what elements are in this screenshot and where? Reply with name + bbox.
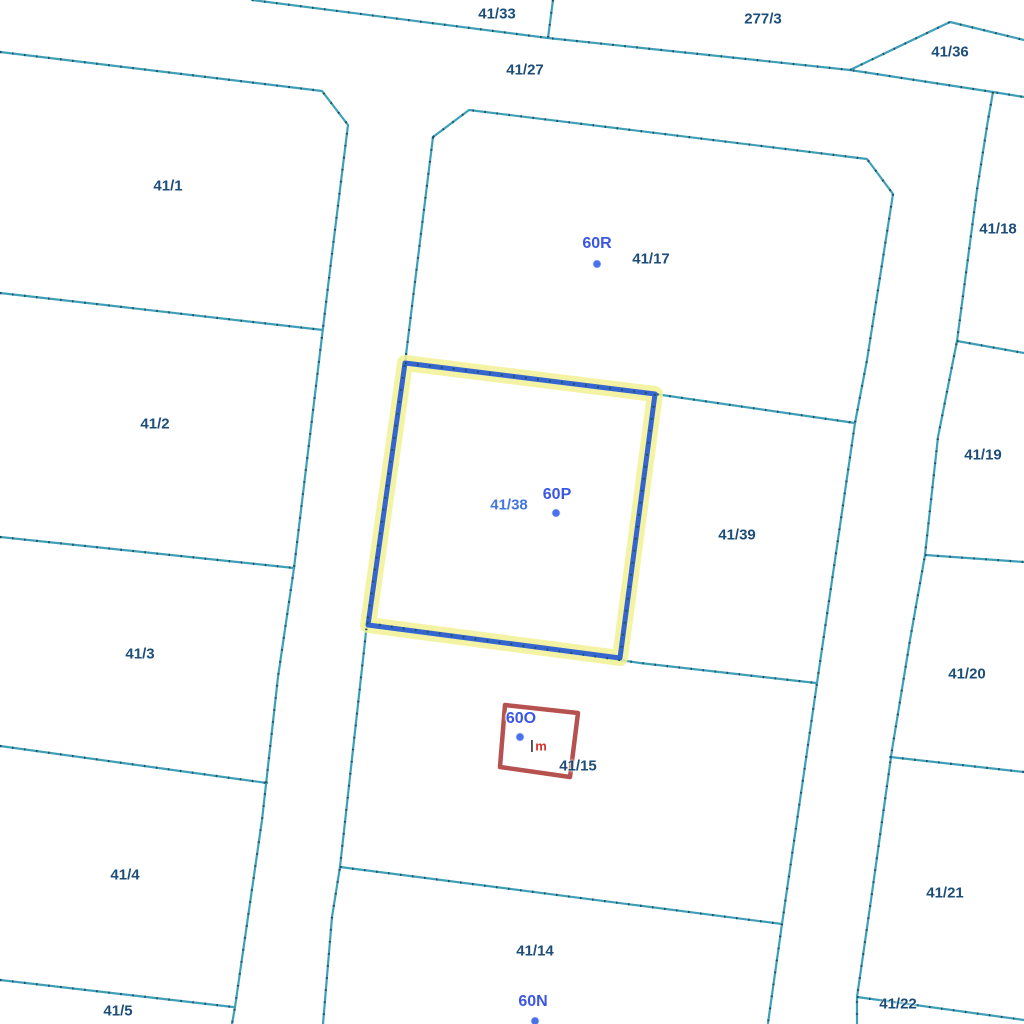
parcel-label-41-5: 41/5 [103, 1004, 132, 1019]
parcel-label-41-39: 41/39 [718, 528, 756, 543]
parcel-label-41-15: 41/15 [559, 759, 597, 774]
parcel-label-41-17: 41/17 [632, 252, 670, 267]
boundary-41-15-41-14-divider [340, 867, 782, 924]
boundary-tick-marks [0, 52, 348, 1024]
parcel-label-41-3: 41/3 [125, 647, 154, 662]
parcel-label-41-36: 41/36 [931, 45, 969, 60]
annotation-m: m [535, 740, 547, 753]
building-marker-60N [531, 1017, 540, 1024]
parcel-label-41-27: 41/27 [506, 63, 544, 78]
boundary-41-18-41-19-divider [957, 341, 1024, 353]
parcel-label-41-20: 41/20 [948, 667, 986, 682]
cadastral-map-canvas[interactable]: 41/33277/341/3641/2741/160R41/1741/1841/… [0, 0, 1024, 1024]
boundary-left-road-west [0, 52, 348, 1024]
annotation-vbar: | [530, 739, 534, 752]
boundary-tick-marks [433, 110, 893, 194]
parcel-label-41-19: 41/19 [964, 448, 1002, 463]
building-marker-60R [593, 260, 602, 269]
boundary-41-33-277-3-divider [548, 0, 553, 38]
parcel-label-41-21: 41/21 [926, 886, 964, 901]
building-label-60R: 60R [582, 236, 611, 252]
parcel-label-277-3: 277/3 [744, 12, 782, 27]
boundary-41-17-north [433, 110, 893, 194]
building-marker-60P [552, 509, 561, 518]
building-label-60P: 60P [543, 487, 571, 503]
building-marker-60O [516, 733, 525, 742]
building-label-60N: 60N [518, 994, 547, 1010]
selected-parcel-label-41-38: 41/38 [490, 498, 528, 513]
boundary-right-road-west [768, 194, 893, 1023]
parcel-label-41-14: 41/14 [516, 944, 554, 959]
parcel-label-41-33: 41/33 [478, 7, 516, 22]
parcel-label-41-1: 41/1 [153, 179, 182, 194]
parcel-label-41-2: 41/2 [140, 417, 169, 432]
parcel-label-41-18: 41/18 [979, 222, 1017, 237]
boundary-top [252, 0, 1024, 97]
building-label-60O: 60O [506, 711, 536, 727]
parcel-label-41-4: 41/4 [110, 868, 139, 883]
parcel-label-41-22: 41/22 [879, 997, 917, 1012]
boundary-41-20-41-21-divider [890, 757, 1024, 772]
boundary-41-2-41-3-divider [0, 537, 294, 568]
boundary-41-3-41-4-divider [0, 746, 267, 783]
